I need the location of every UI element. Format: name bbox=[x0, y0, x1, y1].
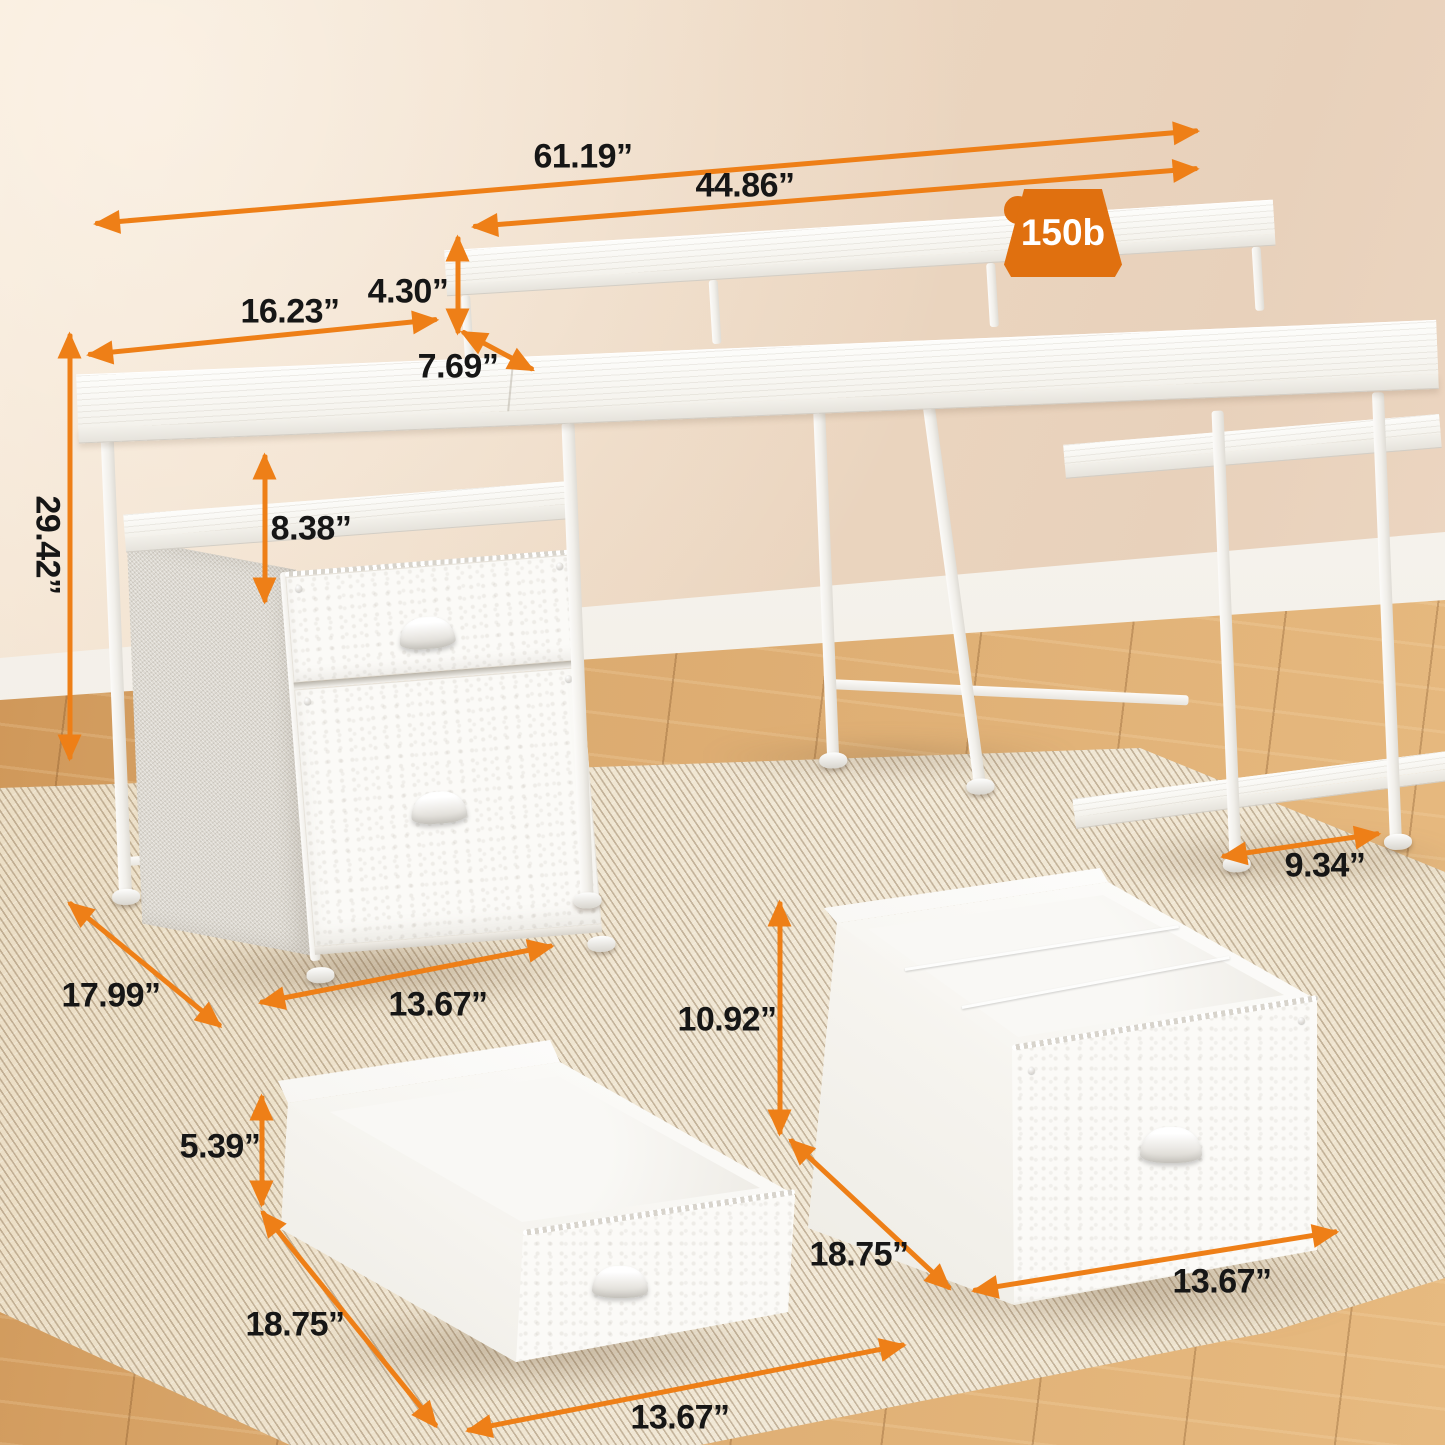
label-top-drawer-height: 5.39” bbox=[180, 1128, 261, 1167]
rivet bbox=[304, 697, 312, 705]
label-monitor-shelf-depth: 7.69” bbox=[418, 348, 499, 387]
label-overall-width: 61.19” bbox=[533, 138, 632, 177]
label-top-drawer-depth: 18.75” bbox=[245, 1306, 344, 1345]
cabinet-foot bbox=[587, 935, 616, 952]
rivet bbox=[1298, 1017, 1305, 1024]
arrow-monitor-shelf-height bbox=[456, 237, 461, 334]
label-file-drawer-width: 13.67” bbox=[1172, 1263, 1271, 1302]
product-dimension-diagram: 150b 61.19” 44.86” 16.23” 4.30” 7.69” 8.… bbox=[0, 0, 1445, 1445]
label-top-drawer-width: 13.67” bbox=[630, 1399, 729, 1438]
label-left-desktop-width: 16.23” bbox=[240, 293, 339, 332]
file-drawer-front[interactable] bbox=[294, 667, 601, 947]
desk-foot bbox=[112, 888, 141, 905]
weight-capacity-label: 150b bbox=[1021, 212, 1105, 254]
support-crossbar bbox=[833, 679, 1189, 705]
arrow-overall-height bbox=[68, 334, 73, 760]
desk-leg-front-left bbox=[100, 427, 132, 897]
label-overall-height: 29.42” bbox=[28, 495, 67, 594]
label-file-drawer-depth: 18.75” bbox=[809, 1236, 908, 1275]
label-desk-depth: 17.99” bbox=[61, 977, 160, 1016]
riser-leg bbox=[709, 280, 722, 344]
rivet bbox=[295, 585, 303, 593]
desk-foot bbox=[966, 778, 995, 795]
desk-leg-back bbox=[922, 398, 987, 789]
label-file-drawer-height: 10.92” bbox=[677, 1001, 776, 1040]
pulled-out-top-drawer[interactable] bbox=[270, 1040, 815, 1400]
desk-foot bbox=[819, 752, 848, 769]
rivet bbox=[1028, 1067, 1035, 1074]
arrow-file-drawer-height bbox=[778, 902, 783, 1135]
riser-leg bbox=[986, 263, 999, 327]
arrow-hutch-gap-height bbox=[263, 455, 268, 603]
desk-foot bbox=[1384, 833, 1413, 850]
label-monitor-shelf-height: 4.30” bbox=[368, 273, 449, 312]
file-drawer-handle[interactable] bbox=[410, 789, 468, 825]
label-bottom-shelf-depth: 9.34” bbox=[1285, 847, 1366, 886]
label-monitor-shelf-width: 44.86” bbox=[695, 167, 794, 206]
riser-leg bbox=[1252, 247, 1265, 311]
pedestal-cabinet bbox=[285, 549, 603, 960]
label-pedestal-width: 13.67” bbox=[388, 986, 487, 1025]
desk-leg-middle bbox=[812, 391, 839, 763]
weight-icon-body: 150b bbox=[1004, 189, 1122, 277]
cabinet-foot bbox=[306, 967, 335, 984]
top-drawer-handle[interactable] bbox=[398, 615, 456, 651]
label-hutch-gap-height: 8.38” bbox=[271, 510, 352, 549]
rivet bbox=[556, 562, 564, 570]
